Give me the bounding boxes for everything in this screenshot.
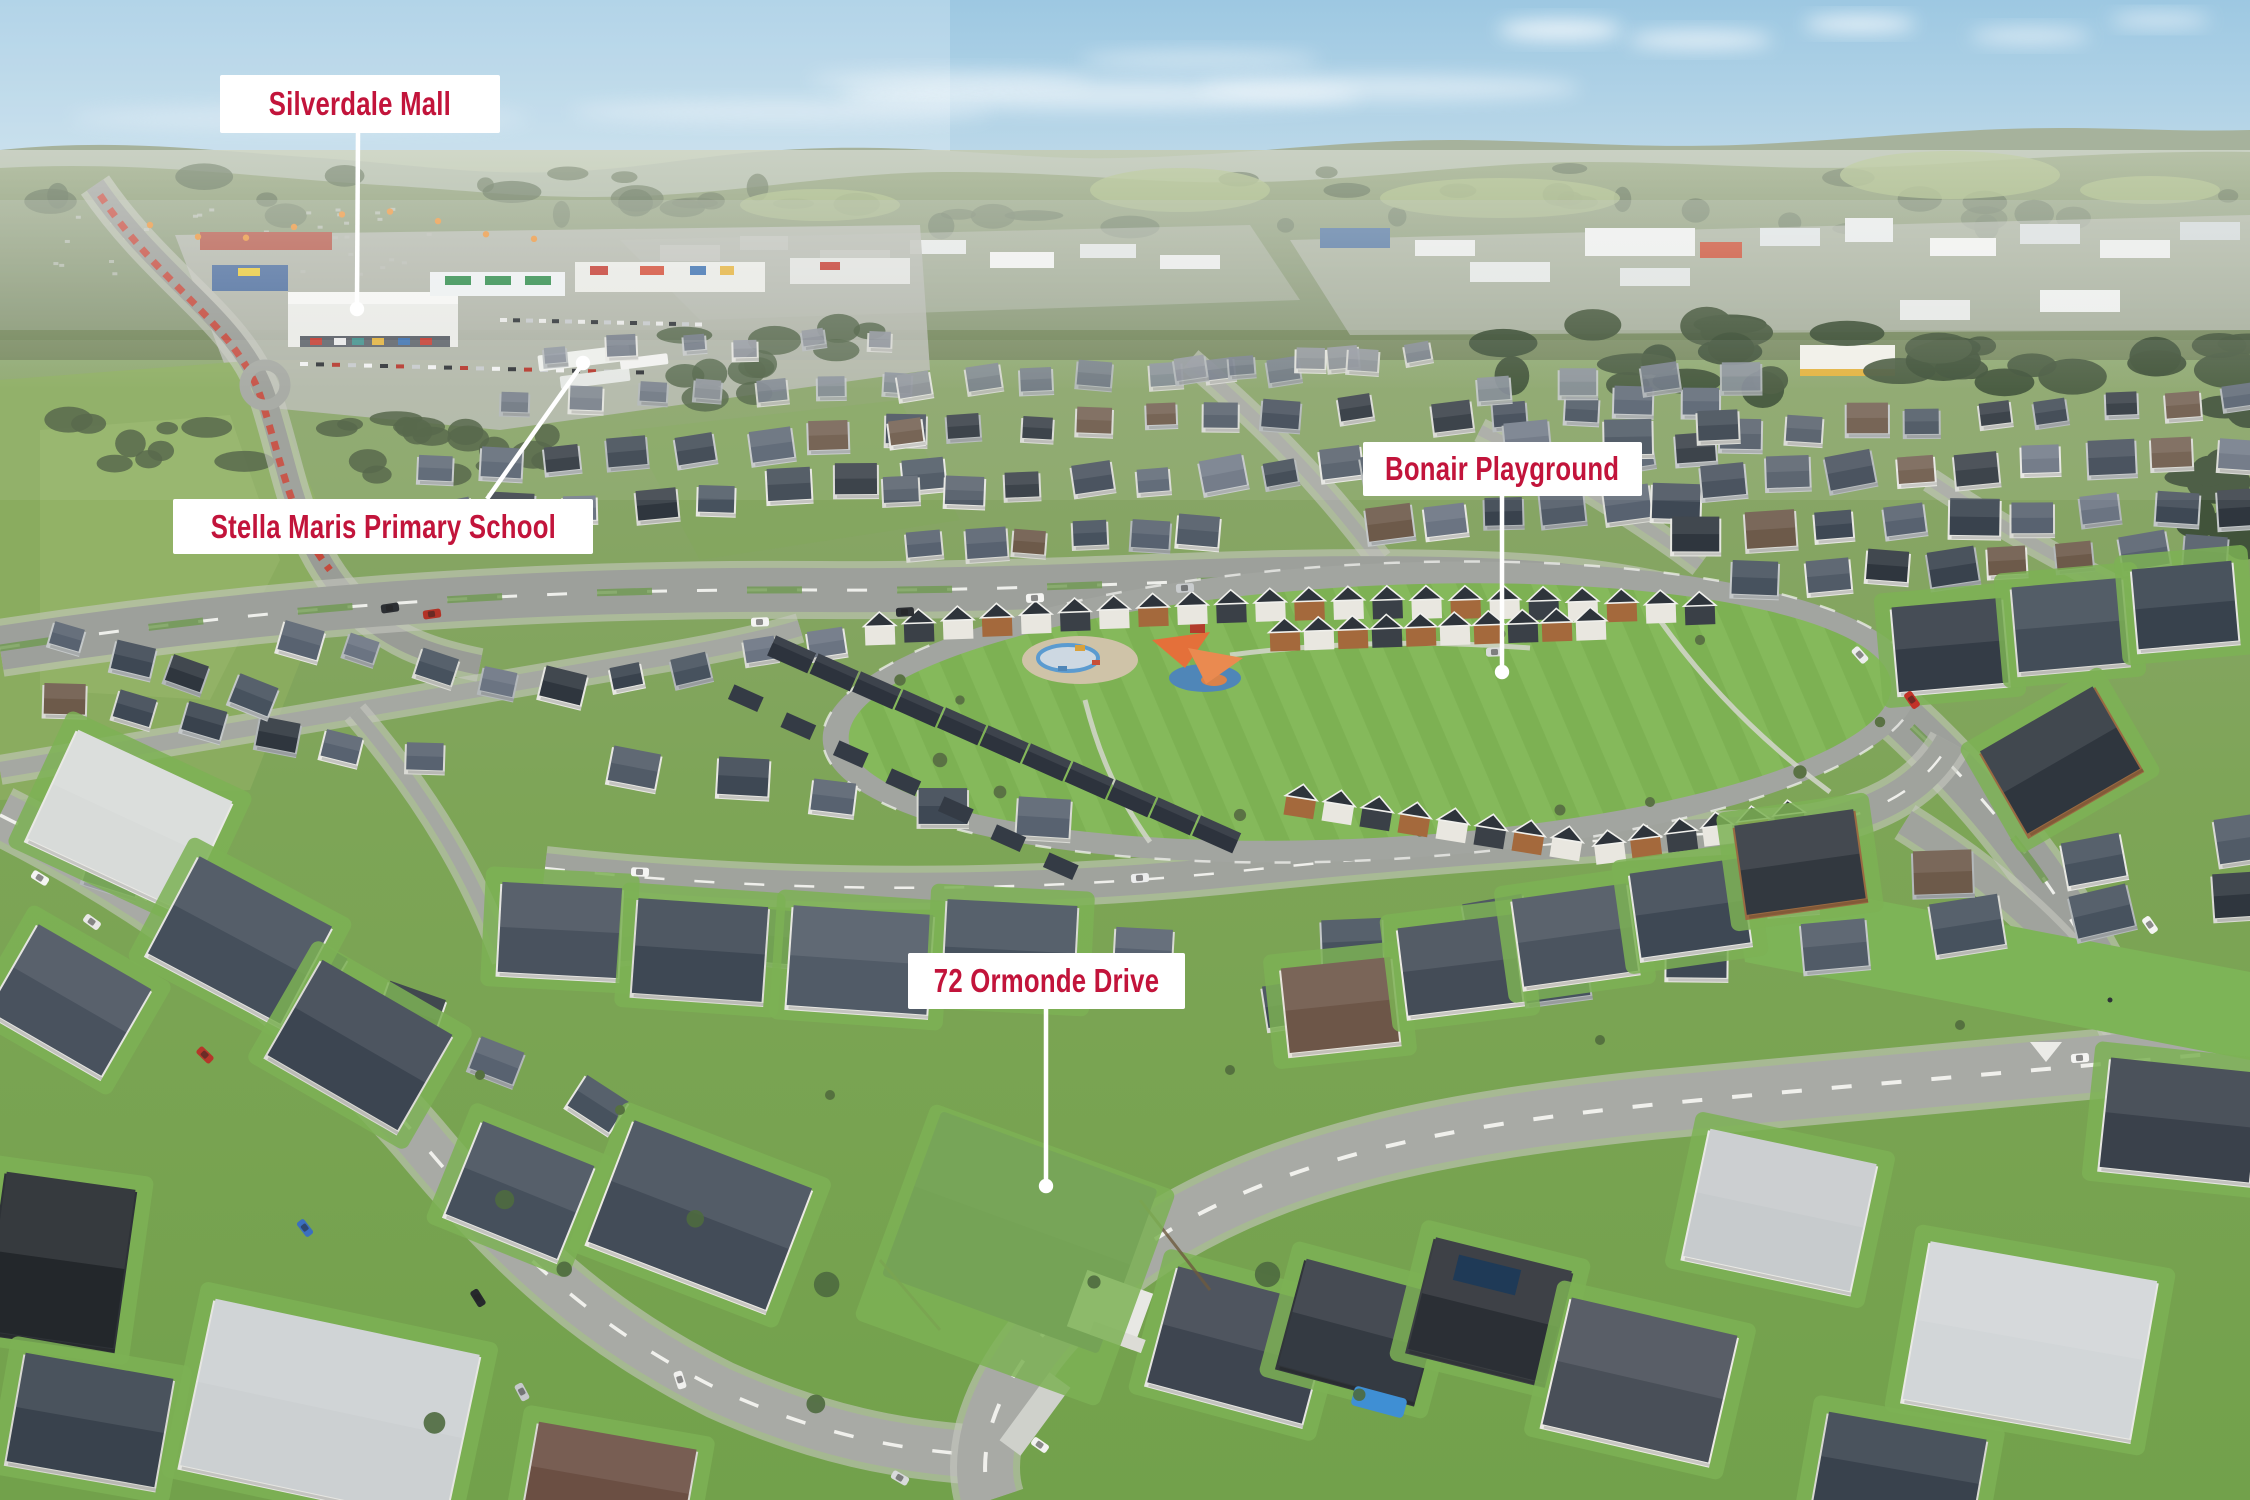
house: [2009, 502, 2055, 538]
label-stella-maris-school-text: Stella Maris Primary School: [210, 508, 555, 546]
house: [715, 756, 772, 801]
house: [1743, 509, 1799, 554]
aerial-photo: Silverdale Mall Stella Maris Primary Sch…: [0, 0, 2250, 1500]
car: [1176, 583, 1194, 593]
house: [808, 778, 858, 820]
house: [1729, 560, 1780, 600]
house: [1422, 502, 1470, 542]
leader-dot: [1495, 665, 1509, 679]
house: [1804, 557, 1854, 598]
house: [904, 529, 945, 563]
car: [1131, 873, 1150, 883]
label-bonair-playground-text: Bonair Playground: [1385, 450, 1619, 488]
house: [1670, 516, 1721, 556]
house: [2097, 1057, 2250, 1187]
car: [2071, 1053, 2090, 1063]
house: [630, 898, 771, 1007]
leader-dot: [350, 302, 364, 316]
car: [896, 607, 914, 617]
house: [0, 1171, 137, 1353]
aerial-scene: [0, 0, 2250, 1500]
label-silverdale-mall: Silverdale Mall: [220, 75, 500, 133]
leader-dot: [576, 356, 590, 370]
house: [1864, 549, 1912, 588]
label-subject-address: 72 Ormonde Drive: [908, 953, 1185, 1009]
label-silverdale-mall-text: Silverdale Mall: [269, 85, 451, 123]
house: [1799, 918, 1871, 976]
house: [42, 683, 88, 720]
house: [1363, 503, 1416, 547]
atmospheric-haze: [0, 150, 2250, 500]
house: [1812, 509, 1855, 544]
house: [1732, 809, 1868, 920]
house: [1279, 957, 1402, 1058]
label-subject-address-text: 72 Ormonde Drive: [934, 962, 1159, 1000]
house: [2130, 561, 2241, 655]
car: [631, 867, 649, 877]
house: [1890, 598, 2011, 698]
house: [1174, 513, 1222, 552]
house: [963, 526, 1009, 564]
car: [751, 617, 769, 627]
leader-dot: [1039, 1179, 1053, 1193]
house: [1129, 519, 1173, 554]
house: [495, 882, 624, 983]
house: [2010, 578, 2131, 678]
car: [1026, 593, 1044, 603]
house: [1071, 520, 1110, 551]
label-bonair-playground: Bonair Playground: [1363, 442, 1642, 496]
house: [1010, 529, 1048, 560]
house: [2210, 870, 2250, 923]
house: [1948, 498, 2002, 541]
label-stella-maris-school: Stella Maris Primary School: [173, 499, 593, 554]
house: [1911, 849, 1975, 899]
house: [1927, 893, 2008, 960]
house: [404, 742, 446, 775]
house: [1881, 502, 1928, 541]
